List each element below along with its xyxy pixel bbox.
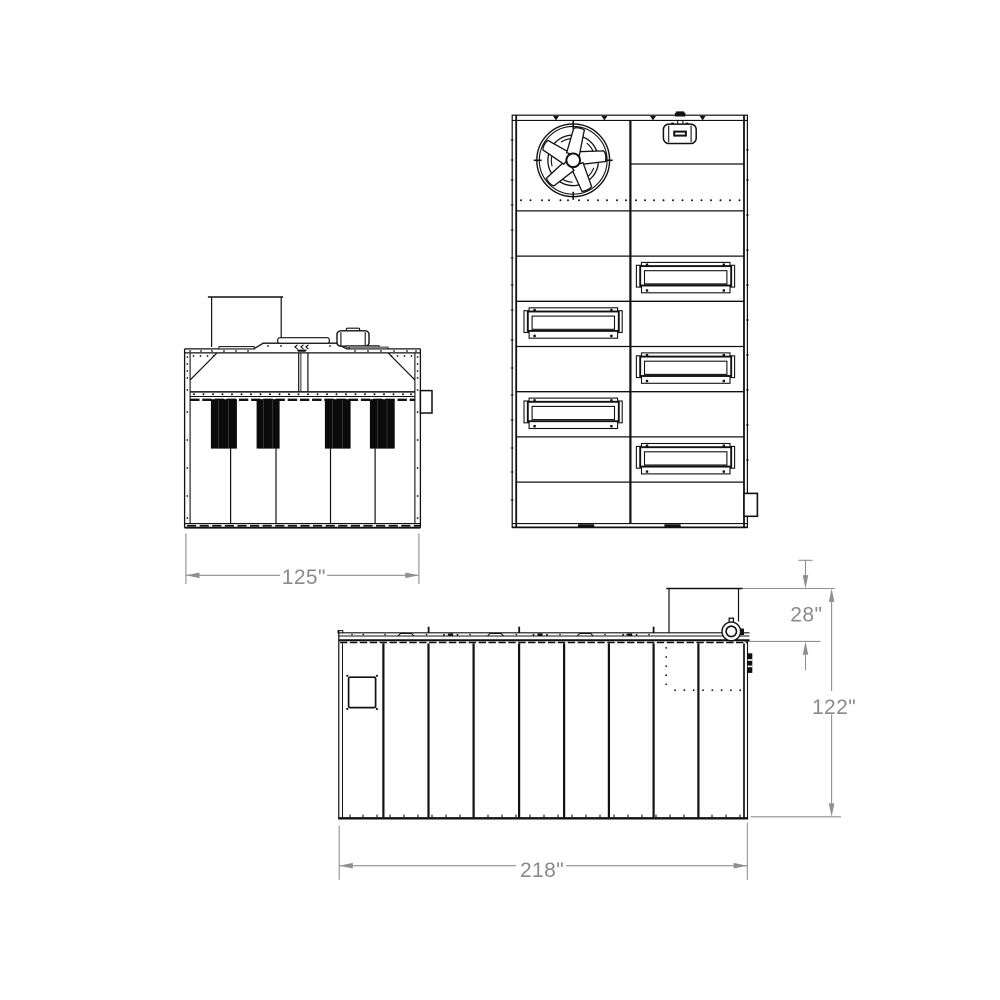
svg-text:28": 28" xyxy=(790,604,822,627)
svg-text:218": 218" xyxy=(520,859,564,882)
svg-text:125": 125" xyxy=(282,566,326,589)
svg-text:122": 122" xyxy=(812,696,856,719)
